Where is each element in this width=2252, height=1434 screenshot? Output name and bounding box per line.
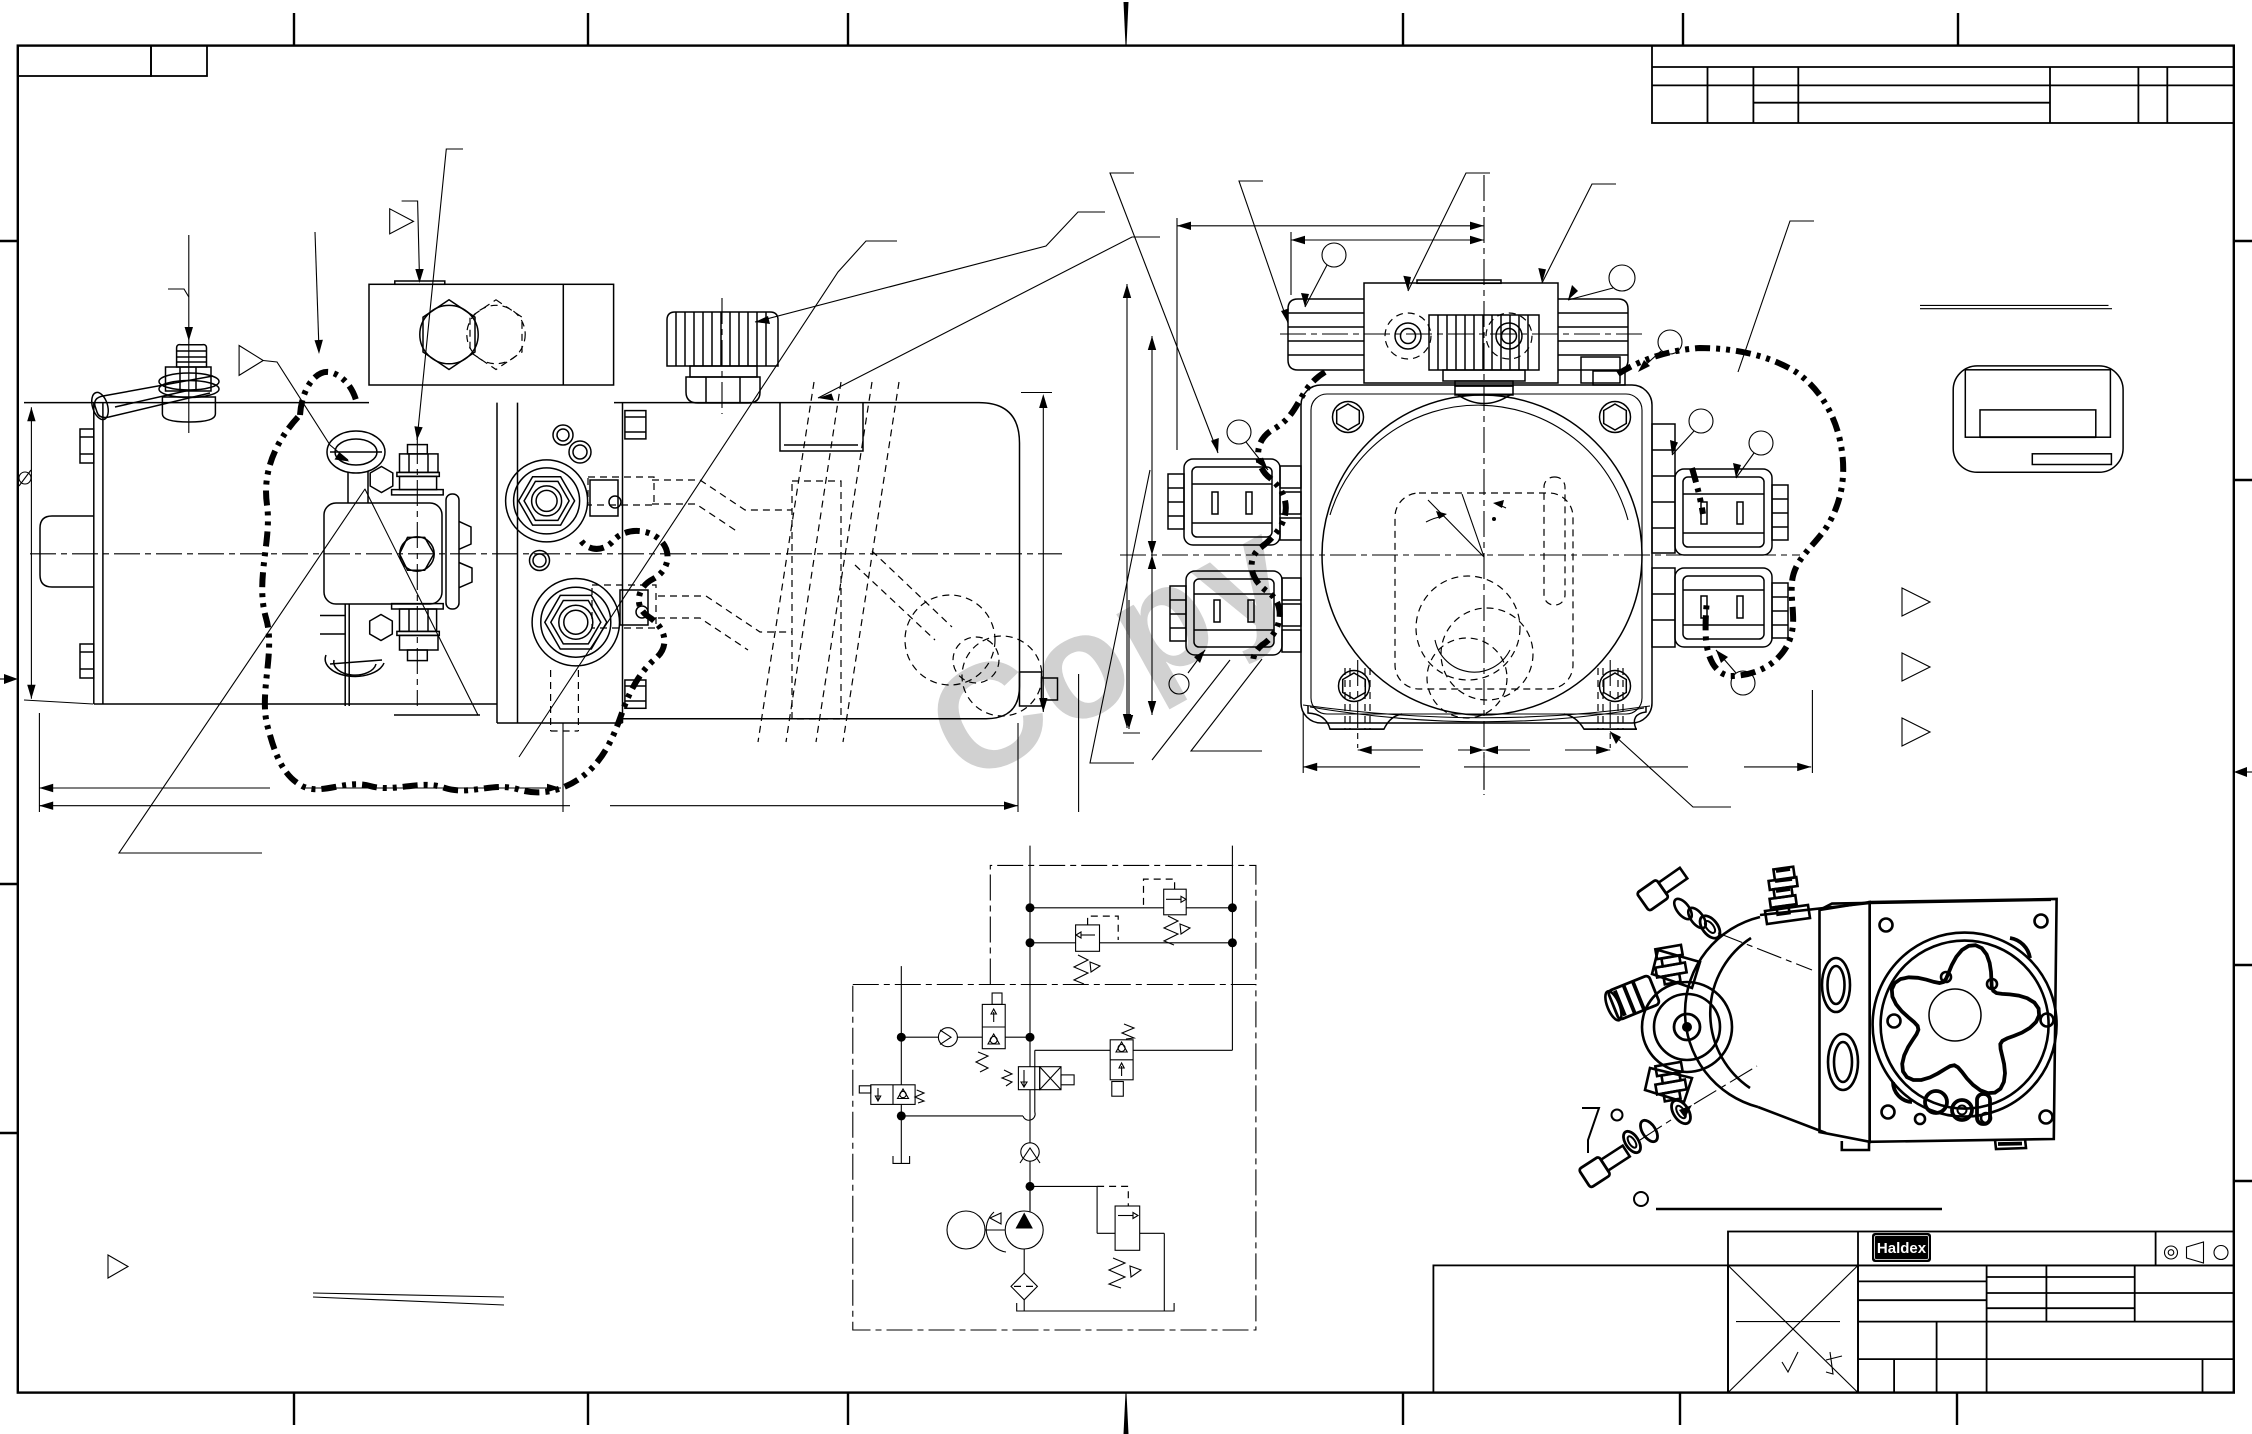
svg-text:Haldex: Haldex: [1877, 1240, 1927, 1257]
